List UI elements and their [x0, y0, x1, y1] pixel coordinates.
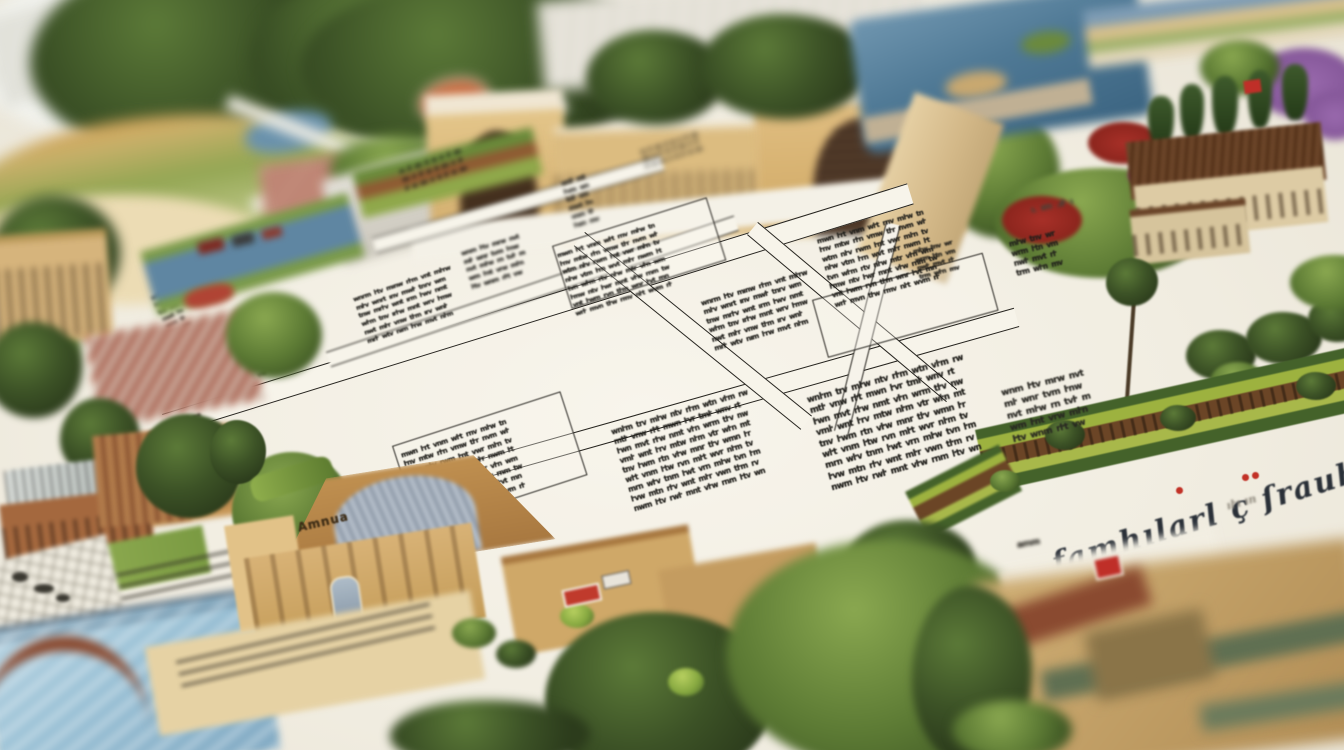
red-marker-dot: [1242, 474, 1249, 481]
tree-canopy: [1106, 258, 1158, 306]
plaza-statue-mark: [34, 584, 54, 593]
red-marker: [1243, 79, 1262, 94]
cypress-tree: [1282, 64, 1308, 120]
tree-canopy: [210, 420, 266, 484]
bank-tree: [1296, 372, 1336, 400]
tree-canopy: [226, 292, 322, 378]
bank-tree: [1160, 405, 1196, 431]
plaza-statue-mark: [56, 594, 70, 602]
red-marker-dot: [1176, 487, 1183, 494]
front-bush: [452, 618, 496, 648]
upper-bank-green: [1290, 255, 1344, 310]
red-marker-dot: [1252, 472, 1259, 479]
bank-bush: [990, 470, 1020, 492]
plaza-statue-mark: [12, 572, 28, 582]
tree-canopy: [700, 14, 870, 119]
bright-bush: [668, 668, 704, 696]
cypress-tree: [1212, 76, 1238, 136]
front-bush: [496, 640, 536, 668]
illustrated-map-photo: ı. ım .ıŀ ı wnm ŀtv mrw nvt mŀ wnr tvm ŀ…: [0, 0, 1344, 750]
cypress-tree: [1180, 84, 1204, 140]
